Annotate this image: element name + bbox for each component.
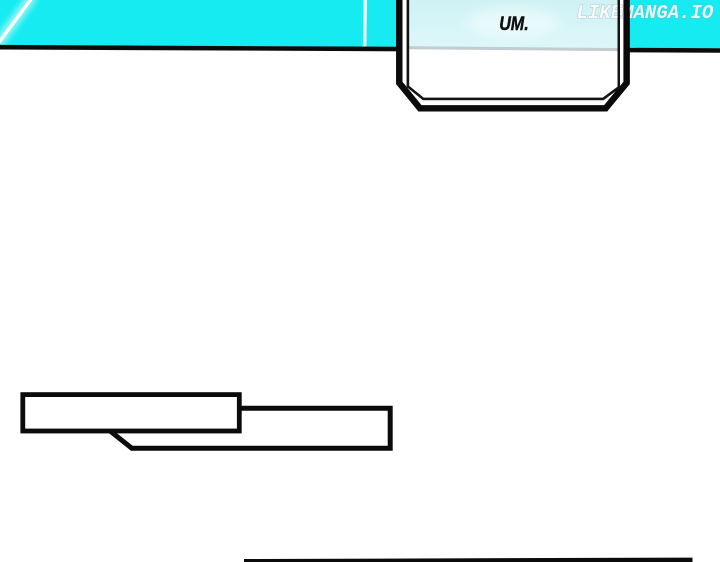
svg-text:LIKEMANGA.IO: LIKEMANGA.IO	[577, 2, 714, 24]
svg-text:UM.: UM.	[499, 14, 529, 35]
